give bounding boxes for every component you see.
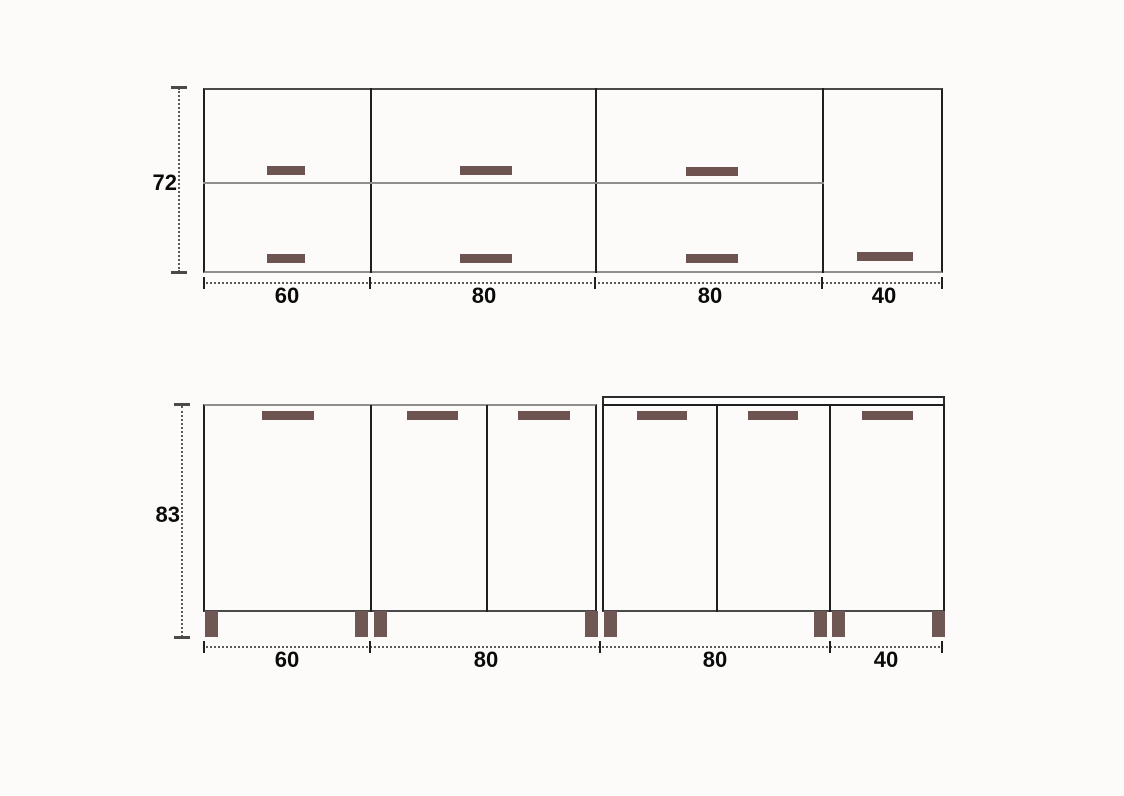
cabinet-foot <box>932 611 945 637</box>
cabinet-foot <box>205 611 218 637</box>
dimension-tick <box>599 641 601 653</box>
lower-door-divider <box>716 406 718 612</box>
lower-cabinet-divider <box>829 406 831 612</box>
lower-width-label: 60 <box>257 648 317 672</box>
cabinet-foot <box>832 611 845 637</box>
upper-cabinet-middle-line <box>203 182 824 184</box>
cabinet-foot <box>585 611 598 637</box>
door-handle <box>518 411 570 420</box>
lower-height-label: 83 <box>134 502 180 528</box>
lower-width-label: 40 <box>856 648 916 672</box>
upper-width-label: 80 <box>680 284 740 308</box>
upper-height-label: 72 <box>131 170 177 196</box>
dimension-tick <box>594 277 596 289</box>
door-handle <box>460 166 512 175</box>
dimension-tick <box>821 277 823 289</box>
door-handle <box>857 252 913 261</box>
cabinet-foot <box>355 611 368 637</box>
door-handle <box>686 167 738 176</box>
cabinet-foot <box>814 611 827 637</box>
upper-width-label: 80 <box>454 284 514 308</box>
lower-width-label: 80 <box>456 648 516 672</box>
dimension-tick <box>203 277 205 289</box>
upper-cabinet-row-outline <box>203 88 943 273</box>
upper-width-label: 40 <box>854 284 914 308</box>
dimension-tick <box>174 636 190 639</box>
dimension-tick <box>171 271 187 274</box>
cabinet-elevation-drawing: { "drawing": { "type": "kitchen cabinet … <box>0 0 1124 796</box>
upper-cabinet-divider <box>595 88 597 273</box>
lower-cabinet-left-group-outline <box>203 404 597 612</box>
lower-height-dimension-line <box>181 406 183 637</box>
dimension-tick <box>369 641 371 653</box>
lower-door-divider <box>486 405 488 612</box>
lower-width-label: 80 <box>685 648 745 672</box>
door-handle <box>262 411 314 420</box>
cabinet-foot <box>374 611 387 637</box>
cabinet-foot <box>604 611 617 637</box>
upper-cabinet-divider <box>822 88 824 273</box>
door-handle <box>267 166 305 175</box>
dimension-tick <box>369 277 371 289</box>
lower-cabinet-divider <box>370 405 372 612</box>
door-handle <box>407 411 458 420</box>
door-handle <box>862 411 913 420</box>
door-handle <box>460 254 512 263</box>
upper-width-label: 60 <box>257 284 317 308</box>
door-handle <box>686 254 738 263</box>
dimension-tick <box>941 277 943 289</box>
dimension-tick <box>829 641 831 653</box>
upper-cabinet-divider <box>370 88 372 273</box>
door-handle <box>748 411 798 420</box>
dimension-tick <box>941 641 943 653</box>
dimension-tick <box>203 641 205 653</box>
lower-cabinet-right-group-outline <box>602 404 945 612</box>
door-handle <box>637 411 687 420</box>
door-handle <box>267 254 305 263</box>
upper-height-dimension-line <box>178 88 180 272</box>
dimension-tick <box>174 403 190 406</box>
dimension-tick <box>171 86 187 89</box>
